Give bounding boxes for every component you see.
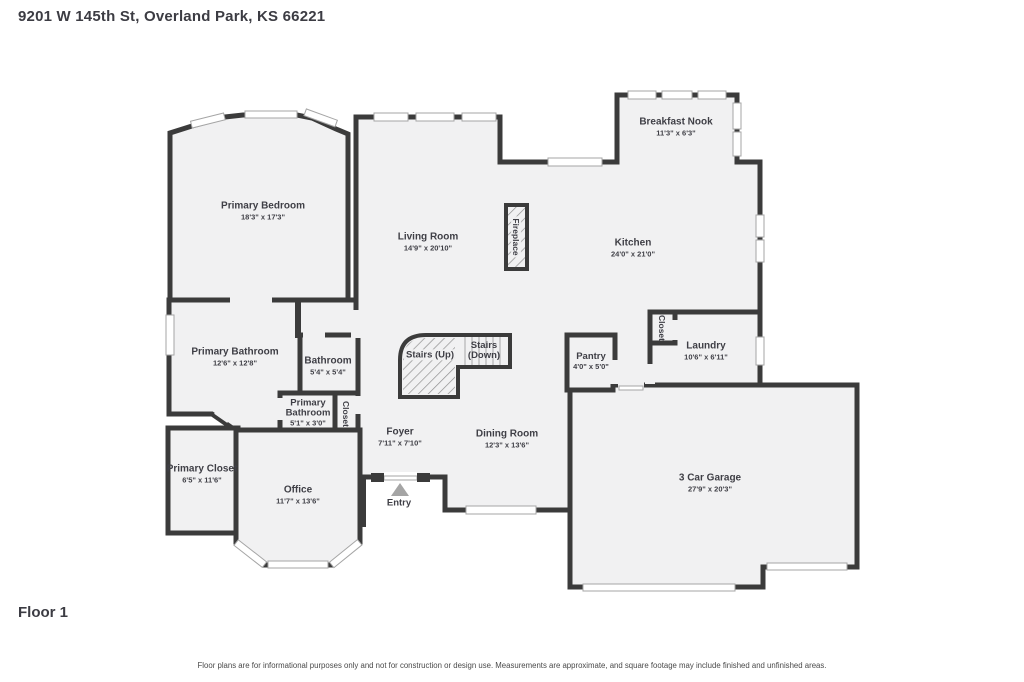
room-dims: 5'1" x 3'0" <box>276 418 340 427</box>
window-nook-right-2 <box>733 132 741 156</box>
room-label-stairs-down: Stairs (Down) <box>458 341 510 361</box>
window-kitchen-right-1 <box>756 215 764 237</box>
window-office-bay-center <box>268 561 328 568</box>
room-label-primary-bathroom-2: Primary Bathroom 5'1" x 3'0" <box>276 399 340 428</box>
door-bathroom <box>303 331 325 340</box>
room-dims: 10'6" x 6'11" <box>684 353 728 362</box>
room-dims: 11'3" x 6'3" <box>639 129 712 138</box>
entry-jamb-right <box>417 473 430 482</box>
room-label-laundry: Laundry 10'6" x 6'11" <box>684 341 728 362</box>
floor-label: Floor 1 <box>18 604 68 621</box>
door-hall-living <box>351 310 361 338</box>
garage-door-single <box>767 563 847 570</box>
room-name: Fireplace <box>511 216 521 257</box>
room-label-closet: Closet <box>341 401 351 427</box>
window-nook-3 <box>698 91 726 99</box>
room-dims: 7'11" x 7'10" <box>378 439 422 448</box>
room-dims: 14'9" x 20'10" <box>398 244 459 253</box>
door-laundry <box>645 364 655 384</box>
window-primary-bathroom <box>166 315 174 355</box>
room-dims: 24'0" x 21'0" <box>611 250 655 259</box>
window-laundry <box>756 337 764 365</box>
room-label-fireplace: Fireplace <box>511 216 521 257</box>
window-nook-1 <box>628 91 656 99</box>
garage-hall-door-line <box>619 386 643 390</box>
room-label-bathroom: Bathroom 5'4" x 5'4" <box>304 356 351 377</box>
floor-plan-drawing <box>0 0 1024 682</box>
window-living-2 <box>416 113 454 121</box>
room-name: Primary Closet <box>167 464 238 476</box>
door-pantry <box>610 360 620 384</box>
room-label-pantry: Pantry 4'0" x 5'0" <box>573 351 609 371</box>
window-bedroom-bay-center <box>245 111 297 118</box>
window-kitchen-top <box>548 158 602 166</box>
entry-jamb-left <box>371 473 384 482</box>
entry-door-line <box>384 476 417 480</box>
room-label-garage: 3 Car Garage 27'9" x 20'3" <box>679 473 741 494</box>
room-name: Pantry <box>573 351 609 362</box>
room-dims: 12'6" x 12'8" <box>191 359 278 368</box>
room-name: Closet <box>341 401 351 427</box>
room-name: Stairs (Up) <box>404 349 456 360</box>
room-name: Dining Room <box>476 429 538 441</box>
room-name: Stairs (Down) <box>458 341 510 361</box>
room-label-primary-bathroom: Primary Bathroom 12'6" x 12'8" <box>191 347 278 368</box>
window-living-3 <box>462 113 496 121</box>
room-label-breakfast-nook: Breakfast Nook 11'3" x 6'3" <box>639 117 712 138</box>
room-name: Primary Bedroom <box>221 201 305 213</box>
room-name: Breakfast Nook <box>639 117 712 129</box>
room-label-primary-bedroom: Primary Bedroom 18'3" x 17'3" <box>221 201 305 222</box>
door-primary-bedroom <box>230 295 272 307</box>
room-name: Primary Bathroom <box>191 347 278 359</box>
room-name: Living Room <box>398 232 459 244</box>
room-dims: 18'3" x 17'3" <box>221 213 305 222</box>
disclaimer-text: Floor plans are for informational purpos… <box>0 661 1024 670</box>
room-name: Foyer <box>378 427 422 439</box>
window-kitchen-right-2 <box>756 240 764 262</box>
room-name: 3 Car Garage <box>679 473 741 485</box>
garage-door-main <box>583 584 735 591</box>
room-dims: 6'5" x 11'6" <box>167 476 238 485</box>
stairs-up-hatch <box>403 338 455 394</box>
room-name: Laundry <box>684 341 728 353</box>
entry-arrow-icon <box>391 483 409 496</box>
room-name: Closet <box>657 315 667 341</box>
room-dims: 5'4" x 5'4" <box>304 368 351 377</box>
window-dining <box>466 506 536 514</box>
door-laundry-closet <box>671 320 680 340</box>
room-label-office: Office 11'7" x 13'6" <box>276 485 320 506</box>
room-name: Bathroom <box>304 356 351 368</box>
room-name: Entry <box>387 497 411 508</box>
room-label-dining-room: Dining Room 12'3" x 13'6" <box>476 429 538 450</box>
room-label-kitchen: Kitchen 24'0" x 21'0" <box>611 238 655 259</box>
entry-west-wall <box>360 477 366 527</box>
room-dims: 12'3" x 13'6" <box>476 441 538 450</box>
room-label-living-room: Living Room 14'9" x 20'10" <box>398 232 459 253</box>
room-name: Office <box>276 485 320 497</box>
window-nook-right-1 <box>733 103 741 129</box>
room-dims: 27'9" x 20'3" <box>679 485 741 494</box>
floor-plan-page: 9201 W 145th St, Overland Park, KS 66221 <box>0 0 1024 682</box>
door-closet-foyer <box>351 396 362 414</box>
room-label-laundry-closet: Closet <box>657 315 667 341</box>
room-label-primary-closet: Primary Closet 6'5" x 11'6" <box>167 464 238 485</box>
room-label-foyer: Foyer 7'11" x 7'10" <box>378 427 422 448</box>
window-nook-2 <box>662 91 692 99</box>
room-name: Kitchen <box>611 238 655 250</box>
window-living-1 <box>374 113 408 121</box>
room-label-stairs-up: Stairs (Up) <box>404 349 456 360</box>
hall-divider-wall <box>295 300 301 338</box>
room-dims: 4'0" x 5'0" <box>573 362 609 371</box>
room-name: Primary Bathroom <box>276 399 340 419</box>
room-dims: 11'7" x 13'6" <box>276 497 320 506</box>
room-label-entry: Entry <box>387 497 411 508</box>
